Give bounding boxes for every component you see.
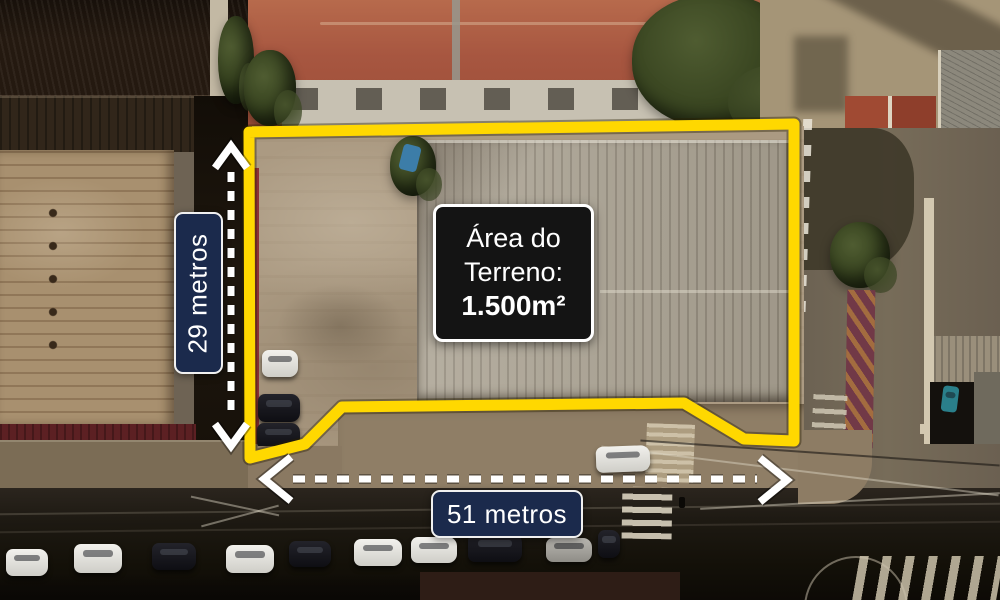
width-arrow-head-left [264,457,291,501]
width-measure-label: 51 metros [431,490,583,538]
area-info-box: Área do Terreno: 1.500m² [433,204,594,342]
width-arrow-head-right [760,458,787,502]
aerial-photo: 29 metros 51 metros Área do Terreno: 1.5… [0,0,1000,600]
height-measure-text: 29 metros [183,233,214,353]
height-measure-label: 29 metros [174,212,223,374]
area-info-line-2: Terreno: [464,256,563,289]
area-info-line-3: 1.500m² [461,289,565,324]
height-arrow-head-bottom [215,424,247,446]
width-measure-text: 51 metros [447,499,567,530]
area-info-line-1: Área do [466,222,561,255]
